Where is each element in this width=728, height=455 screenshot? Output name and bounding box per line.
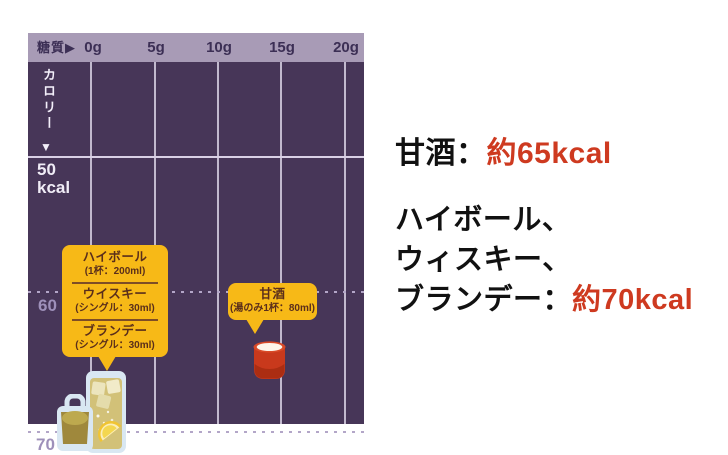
annotation-alcohol-label: ブランデー： [395,284,572,316]
gridline-10g [217,62,219,424]
sugar-calorie-chart: 糖質▶ 0g 5g 10g 15g 20g カロリー ▼ 50 kcal 60 … [28,33,364,424]
annotation-alcohol-kcal: 約70kcal [572,284,693,316]
y-tick-60: 60 [38,296,57,316]
x-tick-5g: 5g [147,33,165,62]
callout-item-highball-serving: (1杯：200ml) [65,265,165,278]
y-axis-arrow-icon: ▼ [40,140,52,154]
callout-amazake-name: 甘酒 [229,287,316,302]
annotation-amazake-label: 甘酒： [395,137,487,170]
callout-alcohol-drinks: ハイボール (1杯：200ml) ウイスキー (シングル：30ml) ブランデー… [62,245,168,357]
gridline-20g [344,62,346,424]
callout-divider [72,282,158,284]
x-tick-15g: 15g [269,33,295,62]
annotation-amazake: 甘酒：約65kcal [395,128,612,172]
amazake-cup-icon [252,340,287,380]
whisky-glass-icon [56,394,94,452]
x-tick-0g: 0g [84,33,102,62]
callout-amazake: 甘酒 (湯のみ1杯：80ml) [228,283,317,320]
callout-item-highball-name: ハイボール [65,250,165,265]
x-axis-header: 糖質▶ 0g 5g 10g 15g 20g [28,33,364,62]
y-tick-50kcal: 50 kcal [37,161,70,197]
callout-item-brandy-name: ブランデー [65,324,165,339]
callout-item-brandy-serving: (シングル：30ml) [65,339,165,352]
annotation-alcohol-line2: ウィスキー、 [395,240,693,280]
callout-item-whisky-serving: (シングル：30ml) [65,302,165,315]
callout-tail [98,356,116,371]
y-tick-50-unit: kcal [37,179,70,197]
gridline-50kcal [28,156,364,158]
y-axis-title: カロリー [39,68,58,132]
callout-amazake-serving: (湯のみ1杯：80ml) [229,302,316,315]
x-axis-title-text: 糖質 [37,40,65,55]
annotation-alcohol: ハイボール、 ウィスキー、 ブランデー：約70kcal [395,200,693,320]
infographic: 糖質▶ 0g 5g 10g 15g 20g カロリー ▼ 50 kcal 60 … [0,0,728,455]
x-axis-arrow-icon: ▶ [65,40,76,55]
plot-area: カロリー ▼ 50 kcal 60 70 ハイボール (1杯：200ml) ウイ… [28,62,364,424]
annotation-amazake-kcal: 約65kcal [487,137,612,170]
x-axis-title: 糖質▶ [37,33,76,62]
x-tick-20g: 20g [333,33,359,62]
callout-divider [72,319,158,321]
y-tick-70: 70 [36,435,55,455]
callout-tail [246,319,264,334]
callout-item-whisky-name: ウイスキー [65,287,165,302]
annotation-alcohol-line3: ブランデー：約70kcal [395,280,693,320]
gridline-5g [154,62,156,424]
y-tick-50-number: 50 [37,161,70,179]
x-tick-10g: 10g [206,33,232,62]
annotation-alcohol-line1: ハイボール、 [395,200,693,240]
